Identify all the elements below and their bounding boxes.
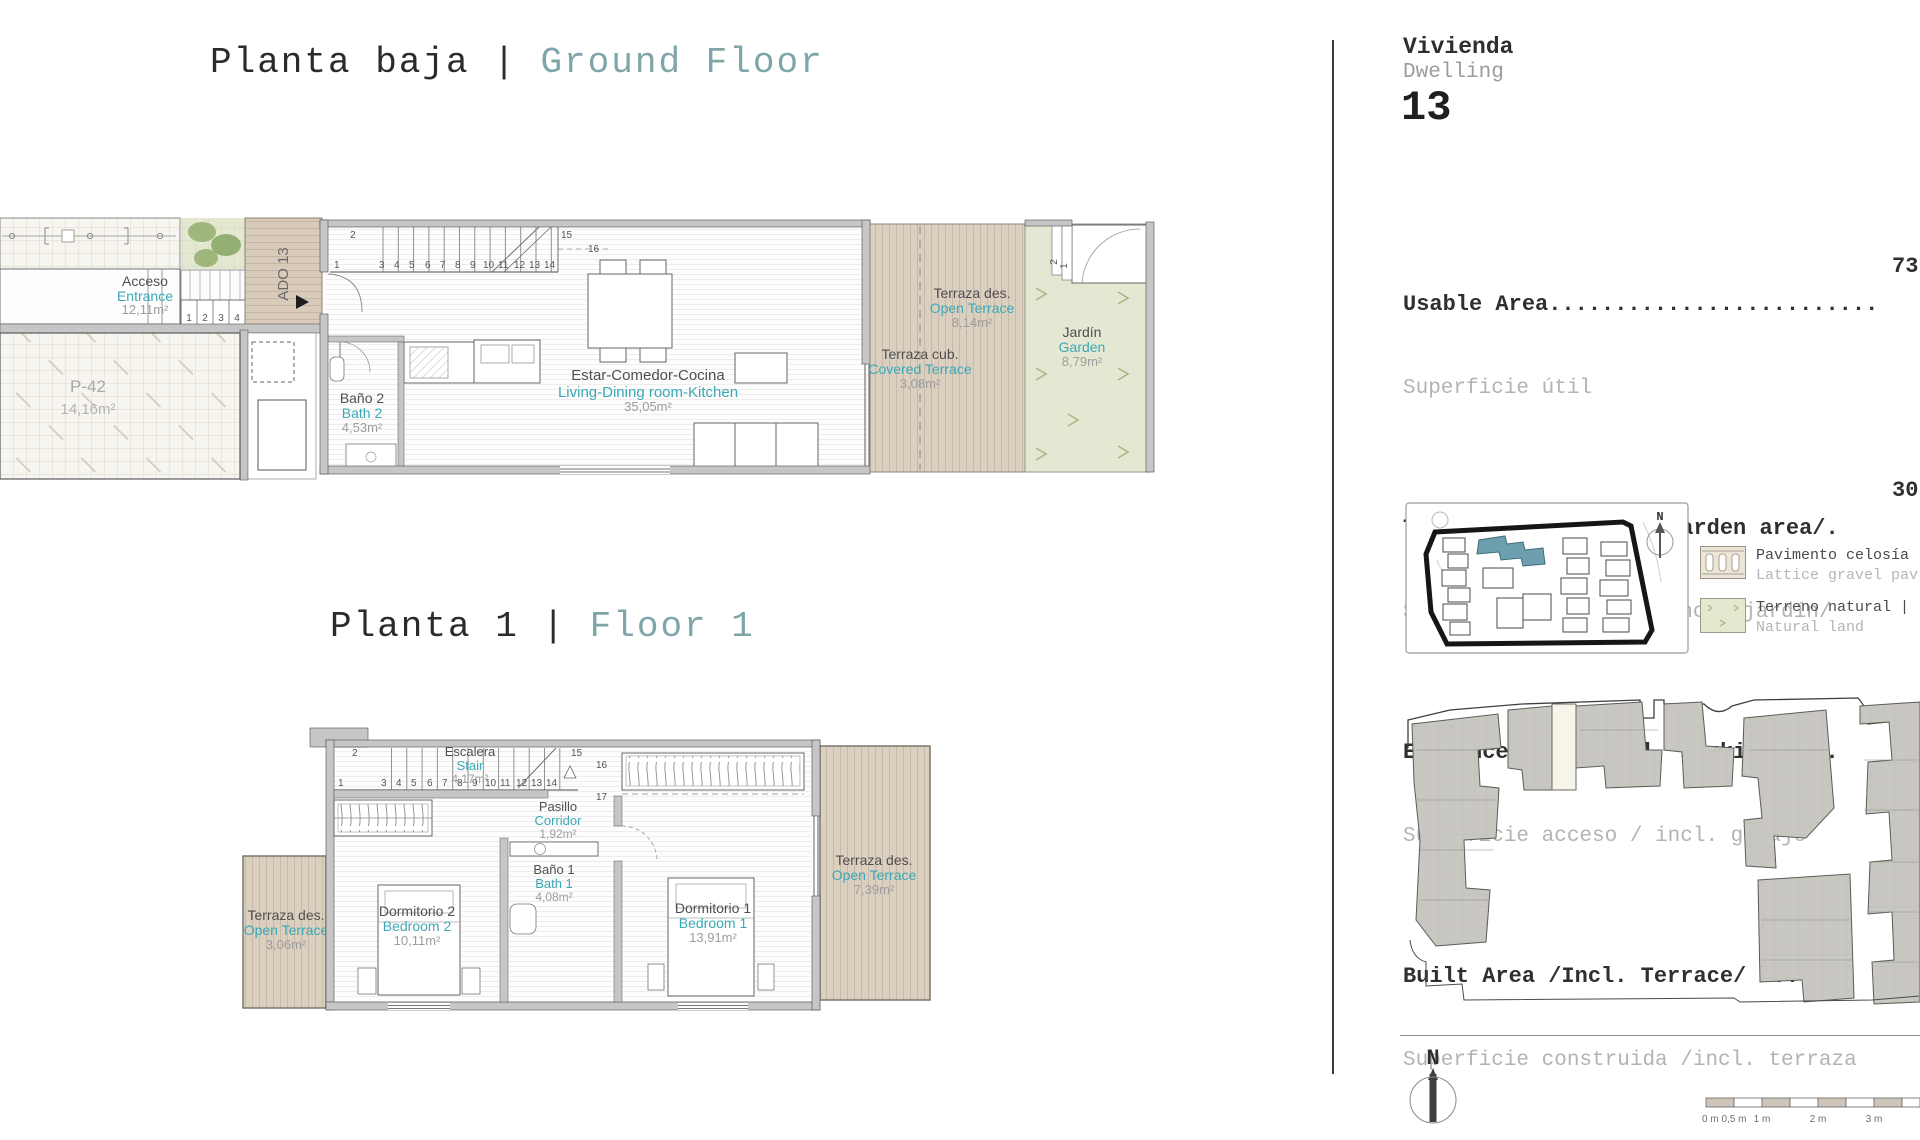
stair-num: 11 xyxy=(500,778,511,789)
storage-box xyxy=(258,400,306,470)
stair-num: 8 xyxy=(457,778,463,789)
entry-step-3: 3 xyxy=(218,313,224,324)
stair-num: 12 xyxy=(516,778,528,789)
stair-num: 15 xyxy=(571,748,583,759)
stair-num: 17 xyxy=(596,792,608,803)
room-label-corridor-es: Pasillo xyxy=(539,799,577,814)
title-ground-en: Ground Floor xyxy=(540,42,823,83)
scale-label-0: 0 m xyxy=(1702,1114,1719,1125)
panel-divider xyxy=(1332,40,1334,1074)
stair-num: 8 xyxy=(455,260,461,271)
title-floor1-sep: | xyxy=(519,606,590,647)
scale-label-05: 0,5 m xyxy=(1721,1114,1746,1125)
room-label-bath2-m2: 4,53m² xyxy=(342,420,383,435)
ground-left-zone: 1 2 3 4 ADO 13 P-42 14,16m² Acceso Entra… xyxy=(0,218,326,480)
room-label-stair-en: Stair xyxy=(457,758,484,773)
highlighted-dwelling xyxy=(1552,704,1576,790)
scale-label-1: 1 m xyxy=(1754,1114,1771,1125)
room-label-bath1-es: Baño 1 xyxy=(533,862,574,877)
area-row-usable: Usable Area......................... 73 … xyxy=(1403,254,1920,439)
room-label-terrace-right-en: Open Terrace xyxy=(832,867,917,883)
room-label-living-m2: 35,05m² xyxy=(624,399,672,414)
building-clusters xyxy=(1412,702,1920,1004)
room-label-bedroom1-en: Bedroom 1 xyxy=(679,915,748,931)
room-label-bedroom2-en: Bedroom 2 xyxy=(383,918,452,934)
ground-floor-plan: 1 2 3 4 ADO 13 P-42 14,16m² Acceso Entra… xyxy=(0,214,1160,482)
area-usable-en: Usable Area......................... xyxy=(1403,290,1920,320)
room-label-terrace-left-m2: 3,06m² xyxy=(266,937,307,952)
stair-num: 2 xyxy=(350,230,356,241)
scale-label-3: 3 m xyxy=(1866,1114,1883,1125)
area-built-es: Superficie construida /incl. terraza xyxy=(1403,1046,1920,1076)
ado-label: ADO 13 xyxy=(275,247,292,300)
stair-num: 11 xyxy=(498,260,509,271)
ground-garden: Jardín Garden 8,79m² 2 1 xyxy=(1025,220,1154,472)
room-label-corridor-en: Corridor xyxy=(535,813,583,828)
room-label-bedroom2-es: Dormitorio 2 xyxy=(379,903,455,919)
entry-step-2: 2 xyxy=(202,313,208,324)
stair-num: 1 xyxy=(338,778,344,789)
toilet xyxy=(510,904,536,934)
area-usable-es: Superficie útil xyxy=(1403,374,1920,404)
wall xyxy=(320,314,328,474)
room-label-garden-en: Garden xyxy=(1059,339,1106,355)
kitchen-counter xyxy=(404,340,540,383)
wall xyxy=(1025,220,1072,226)
room-label-terrace-right-es: Terraza des. xyxy=(835,852,912,868)
legend-swatch-natural-icon xyxy=(1700,598,1746,633)
stair-num: 16 xyxy=(596,760,608,771)
entry-step-1: 1 xyxy=(186,313,192,324)
development-site-plan xyxy=(1402,690,1920,1020)
wall xyxy=(614,861,622,1002)
floor1-terrace-right: Terraza des. Open Terrace 7,39m² xyxy=(820,746,930,1000)
scale-bar-labels: 0 m 0,5 m 1 m 2 m 3 m xyxy=(1702,1114,1882,1125)
room-label-bath1-m2: 4,08m² xyxy=(535,890,572,904)
dwelling-label-es: Vivienda xyxy=(1403,34,1513,60)
wall xyxy=(1146,222,1154,472)
stair-num: 13 xyxy=(529,260,541,271)
floor1-terrace-left: Terraza des. Open Terrace 3,06m² xyxy=(243,856,328,1008)
room-label-bedroom1-es: Dormitorio 1 xyxy=(675,900,751,916)
stair-num: 2 xyxy=(352,748,358,759)
stair-num: 9 xyxy=(470,260,476,271)
footer-separator xyxy=(1400,1035,1920,1036)
legend-lattice-en: Lattice gravel pav xyxy=(1756,566,1918,586)
wall xyxy=(320,220,870,227)
stair-num: 6 xyxy=(427,778,433,789)
room-label-covered-terrace-es: Terraza cub. xyxy=(881,346,958,362)
stair-num: 15 xyxy=(561,230,573,241)
stair-num: 3 xyxy=(381,778,387,789)
legend-lattice-es: Pavimento celosía xyxy=(1756,546,1918,566)
dining-table xyxy=(588,260,672,362)
room-label-acceso-m2: 12,11m² xyxy=(122,302,169,317)
stair-num: 14 xyxy=(544,260,556,271)
garden-door xyxy=(1072,225,1150,283)
planting-patch xyxy=(181,218,245,269)
stair-num: 4 xyxy=(394,260,400,271)
stair-num: 9 xyxy=(472,778,478,789)
garden-step: 1 xyxy=(1059,263,1070,269)
parking-label: P-42 xyxy=(70,377,106,396)
legend-item-natural: Terreno natural | Natural land xyxy=(1700,598,1746,644)
parking-m2: 14,16m² xyxy=(60,401,115,418)
lattice-paving-strip xyxy=(0,218,180,269)
room-label-bedroom1-m2: 13,91m² xyxy=(689,930,737,945)
room-label-acceso-es: Acceso xyxy=(122,273,168,289)
room-label-living-es: Estar-Comedor-Cocina xyxy=(571,367,725,384)
north-label: N xyxy=(1426,1046,1439,1071)
stair-num: 12 xyxy=(514,260,526,271)
stair-num: 10 xyxy=(485,778,497,789)
stair-num: 7 xyxy=(440,260,446,271)
mini-site-plan: N xyxy=(1405,502,1689,654)
wall xyxy=(862,220,870,364)
room-label-corridor-m2: 1,92m² xyxy=(539,827,576,841)
window xyxy=(560,466,670,474)
title-ground-floor: Planta baja | Ground Floor xyxy=(210,42,824,83)
stair-num: 14 xyxy=(546,778,558,789)
vanity xyxy=(510,842,598,856)
scale-label-2: 2 m xyxy=(1810,1114,1827,1125)
title-ground-es: Planta baja xyxy=(210,42,470,83)
wall xyxy=(334,790,548,798)
title-ground-sep: | xyxy=(470,42,541,83)
ground-open-terrace: Terraza des. Open Terrace 8,14m² Terraza… xyxy=(868,224,1025,472)
scale-bar-segments xyxy=(1706,1098,1920,1107)
stair-num: 5 xyxy=(411,778,417,789)
room-label-open-terrace-en: Open Terrace xyxy=(930,300,1015,316)
stair-num: 16 xyxy=(588,244,600,255)
room-label-terrace-left-es: Terraza des. xyxy=(247,907,324,923)
north-arrow-icon: N xyxy=(1408,1044,1468,1132)
room-label-covered-terrace-m2: 3,08m² xyxy=(900,376,941,391)
wall xyxy=(614,796,622,826)
floor1-plan: Terraza des. Open Terrace 3,06m² Terraza… xyxy=(238,726,933,1022)
area-usable-value: 73 xyxy=(1892,254,1918,279)
room-label-open-terrace-m2: 8,14m² xyxy=(952,315,993,330)
svg-text:N: N xyxy=(1656,510,1663,524)
room-label-garden-es: Jardín xyxy=(1063,324,1102,340)
legend-item-lattice: Pavimento celosía Lattice gravel pav xyxy=(1700,546,1746,592)
wall xyxy=(500,838,508,1002)
wall xyxy=(812,896,820,1010)
stair-num: 13 xyxy=(531,778,543,789)
stair-num: 5 xyxy=(409,260,415,271)
wall xyxy=(320,220,328,272)
room-label-terrace-right-m2: 7,39m² xyxy=(854,882,895,897)
floor1-house: Escalera Stair 4,17m² 1 2 3 4 5 6 7 8 9 … xyxy=(310,728,820,1010)
stair-num: 3 xyxy=(379,260,385,271)
entry-step-4: 4 xyxy=(234,313,240,324)
title-floor1-es: Planta 1 xyxy=(330,606,519,647)
room-label-bedroom2-m2: 10,11m² xyxy=(394,933,441,948)
parking-p42: P-42 14,16m² xyxy=(0,333,240,479)
entry-grating xyxy=(181,270,247,300)
room-label-bath2-en: Bath 2 xyxy=(342,405,383,421)
stair-num: 1 xyxy=(334,260,340,271)
stair-num: 7 xyxy=(442,778,448,789)
room-label-bath2-es: Baño 2 xyxy=(340,390,385,406)
room-label-covered-terrace-en: Covered Terrace xyxy=(868,361,971,377)
wall xyxy=(326,740,820,747)
stair-num: 10 xyxy=(483,260,495,271)
title-floor1-en: Floor 1 xyxy=(590,606,755,647)
toilet xyxy=(330,357,344,381)
stair-num: 6 xyxy=(425,260,431,271)
room-label-bath1-en: Bath 1 xyxy=(535,876,573,891)
dwelling-label-en: Dwelling xyxy=(1403,61,1504,84)
stair-num: 4 xyxy=(396,778,402,789)
legend-natural-es: Terreno natural | xyxy=(1756,598,1909,618)
scale-bar: 0 m 0,5 m 1 m 2 m 3 m xyxy=(1702,1092,1920,1132)
room-label-open-terrace-es: Terraza des. xyxy=(933,285,1010,301)
wall xyxy=(326,740,334,1010)
room-label-garden-m2: 8,79m² xyxy=(1062,354,1103,369)
area-terrace-value: 30 xyxy=(1892,478,1918,503)
plan-sheet: { "titles": { "ground": {"es": "Planta b… xyxy=(0,0,1920,1140)
dwelling-number: 13 xyxy=(1401,84,1451,132)
legend-natural-en: Natural land xyxy=(1756,618,1909,638)
title-floor1: Planta 1 | Floor 1 xyxy=(330,606,755,647)
wall xyxy=(812,740,820,816)
room-label-stair-es: Escalera xyxy=(445,744,496,759)
legend-swatch-lattice-icon xyxy=(1700,546,1746,579)
room-label-terrace-left-en: Open Terrace xyxy=(244,922,329,938)
ground-house: 1 2 3 4 5 6 7 8 9 10 11 12 13 14 15 16 1… xyxy=(320,220,870,474)
